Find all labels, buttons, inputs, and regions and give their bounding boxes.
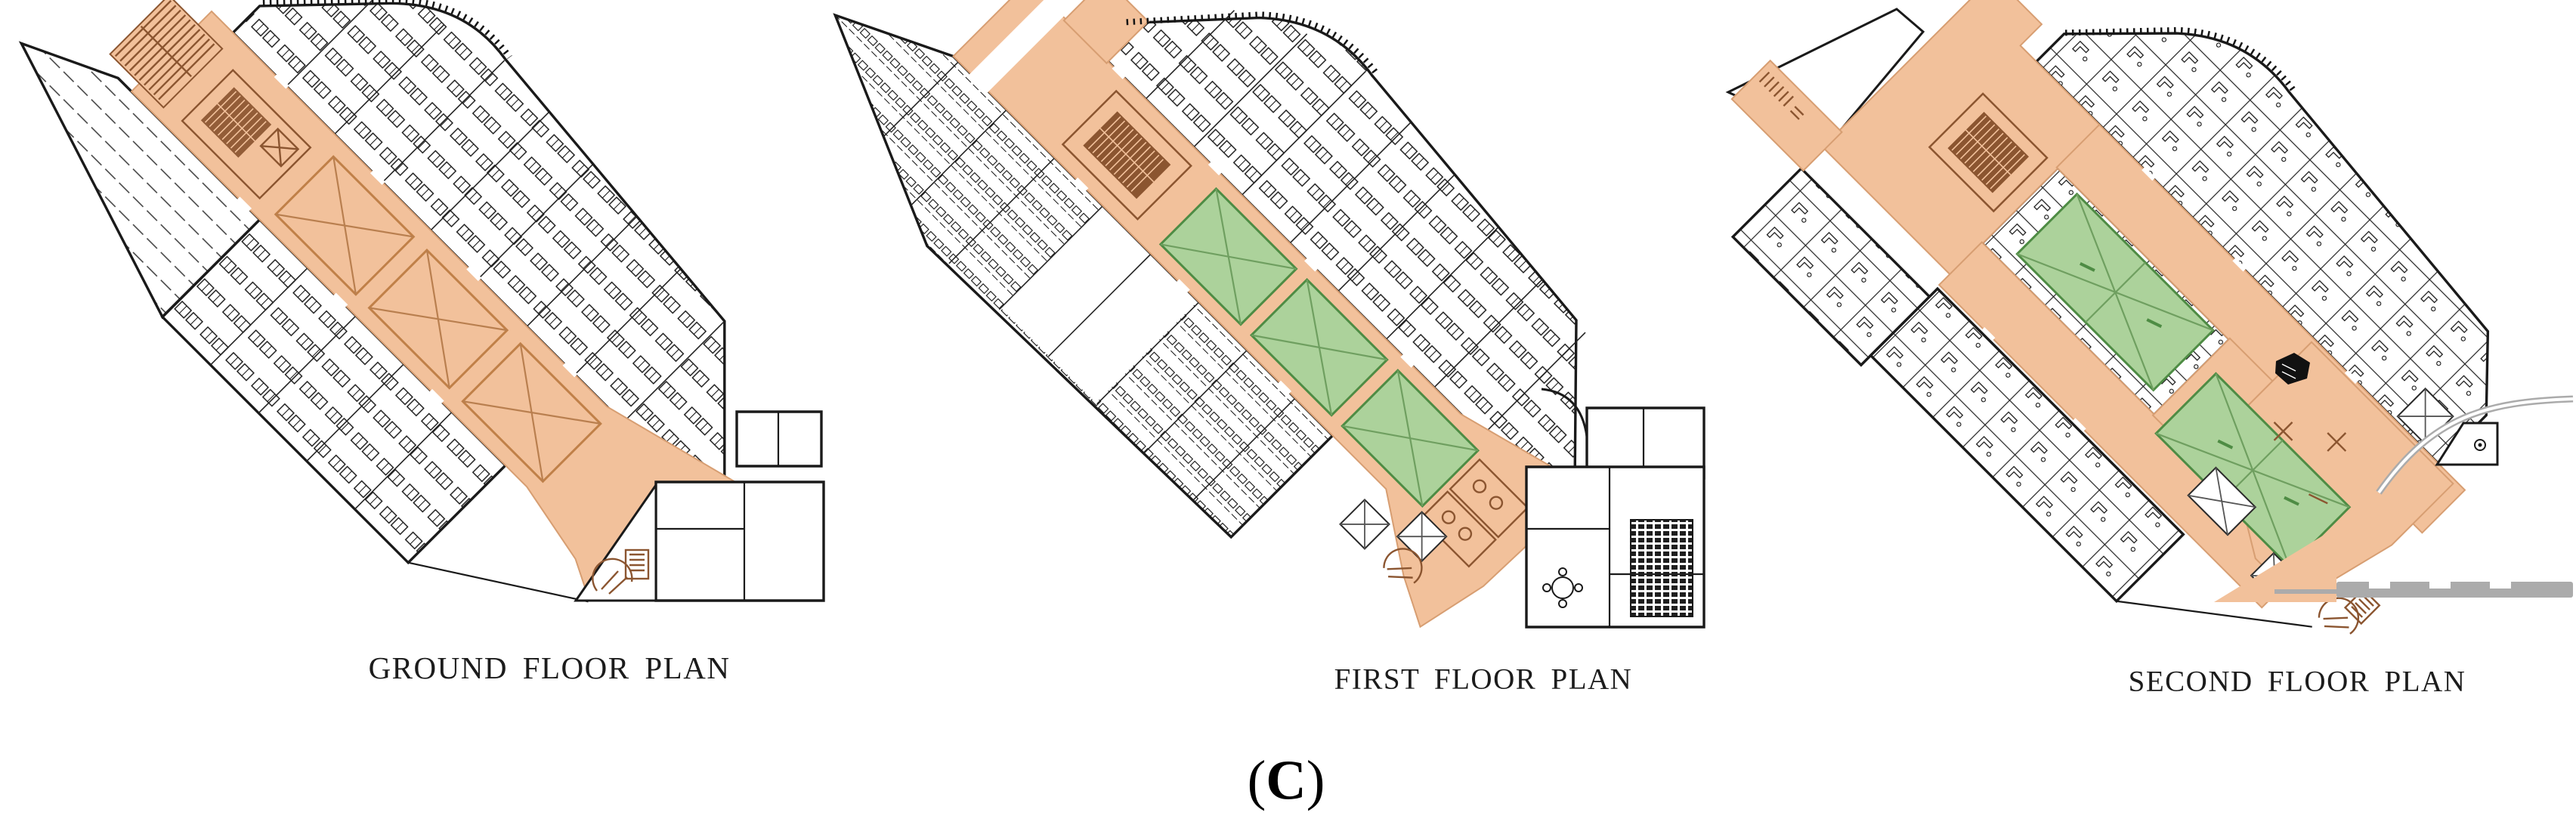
second-floor-plan-label: SECOND FLOOR PLAN [2129, 665, 2466, 699]
ground-floor-plan-drawing [0, 0, 831, 635]
first-floor-plan-label: FIRST FLOOR PLAN [1334, 663, 1633, 697]
figure-caption: (C) [1248, 749, 1325, 814]
figure-canvas: GROUND FLOOR PLAN FIRST FLOOR PLAN SECON… [0, 0, 2576, 828]
ground-floor-plan-label: GROUND FLOOR PLAN [369, 650, 731, 686]
caption-letter: C [1266, 750, 1306, 812]
caption-open-paren: ( [1248, 750, 1266, 812]
caption-close-paren: ) [1307, 750, 1325, 812]
second-floor-plan-drawing [1708, 0, 2576, 635]
first-floor-plan-drawing [831, 0, 1708, 635]
first-auditorium-seats [1631, 520, 1693, 616]
